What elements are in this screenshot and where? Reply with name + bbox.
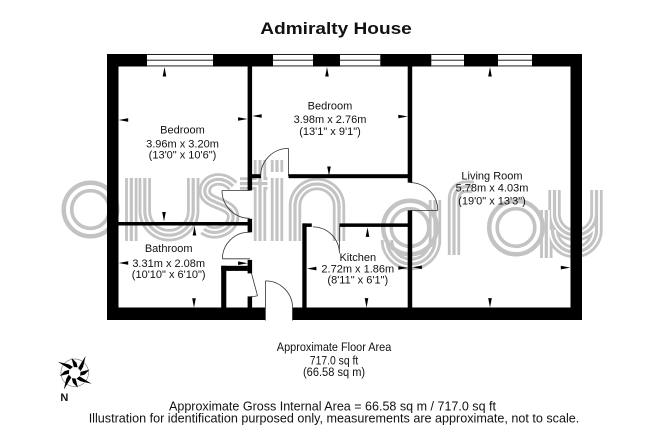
svg-text:5.78m x 4.03m: 5.78m x 4.03m bbox=[456, 183, 529, 195]
svg-text:3.98m x 2.76m: 3.98m x 2.76m bbox=[294, 114, 367, 126]
svg-text:3.96m x 3.20m: 3.96m x 3.20m bbox=[146, 138, 219, 150]
svg-text:Illustration for identificatio: Illustration for identification purposed… bbox=[89, 411, 580, 425]
svg-text:(13'1" x 9'1"): (13'1" x 9'1") bbox=[299, 126, 361, 138]
svg-text:(8'11" x 6'1"): (8'11" x 6'1") bbox=[327, 275, 388, 287]
svg-text:N: N bbox=[60, 392, 68, 404]
svg-text:Living Room: Living Room bbox=[461, 170, 522, 182]
svg-text:Bedroom: Bedroom bbox=[160, 125, 205, 137]
svg-text:Bedroom: Bedroom bbox=[308, 101, 353, 113]
svg-text:Admiralty House: Admiralty House bbox=[260, 19, 412, 38]
svg-text:(10'10" x 6'10"): (10'10" x 6'10") bbox=[132, 269, 206, 281]
svg-text:Bathroom: Bathroom bbox=[145, 243, 193, 255]
svg-text:Approximate Floor Area: Approximate Floor Area bbox=[277, 340, 392, 354]
svg-text:(66.58 sq m): (66.58 sq m) bbox=[303, 365, 365, 379]
svg-text:Kitchen: Kitchen bbox=[339, 252, 376, 264]
svg-text:(19'0" x 13'3"): (19'0" x 13'3") bbox=[458, 195, 526, 207]
svg-text:(13'0" x 10'6"): (13'0" x 10'6") bbox=[149, 150, 217, 162]
